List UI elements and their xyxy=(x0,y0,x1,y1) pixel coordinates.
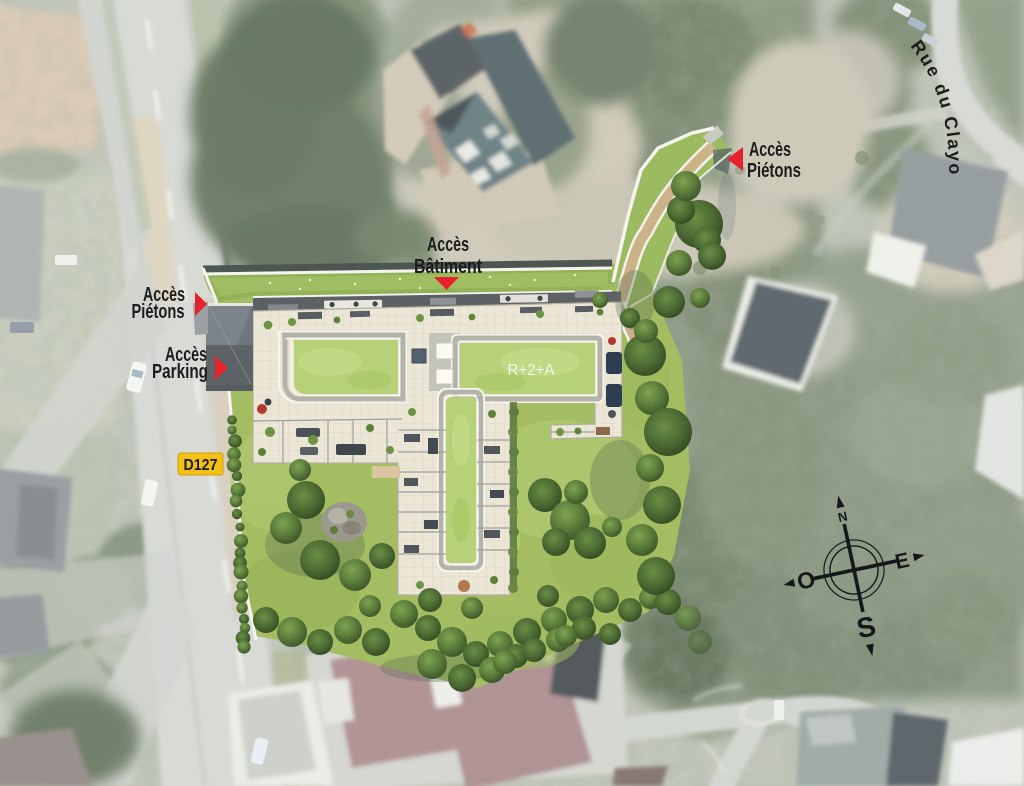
svg-text:Piétons: Piétons xyxy=(747,160,801,182)
svg-text:R+2+A: R+2+A xyxy=(508,362,556,379)
svg-text:Accès: Accès xyxy=(749,139,791,161)
svg-text:Parking: Parking xyxy=(152,361,208,383)
svg-text:D127: D127 xyxy=(184,457,218,474)
svg-text:Accès: Accès xyxy=(427,234,469,256)
svg-text:Piétons: Piétons xyxy=(132,301,185,323)
svg-text:Bâtiment: Bâtiment xyxy=(414,256,482,278)
